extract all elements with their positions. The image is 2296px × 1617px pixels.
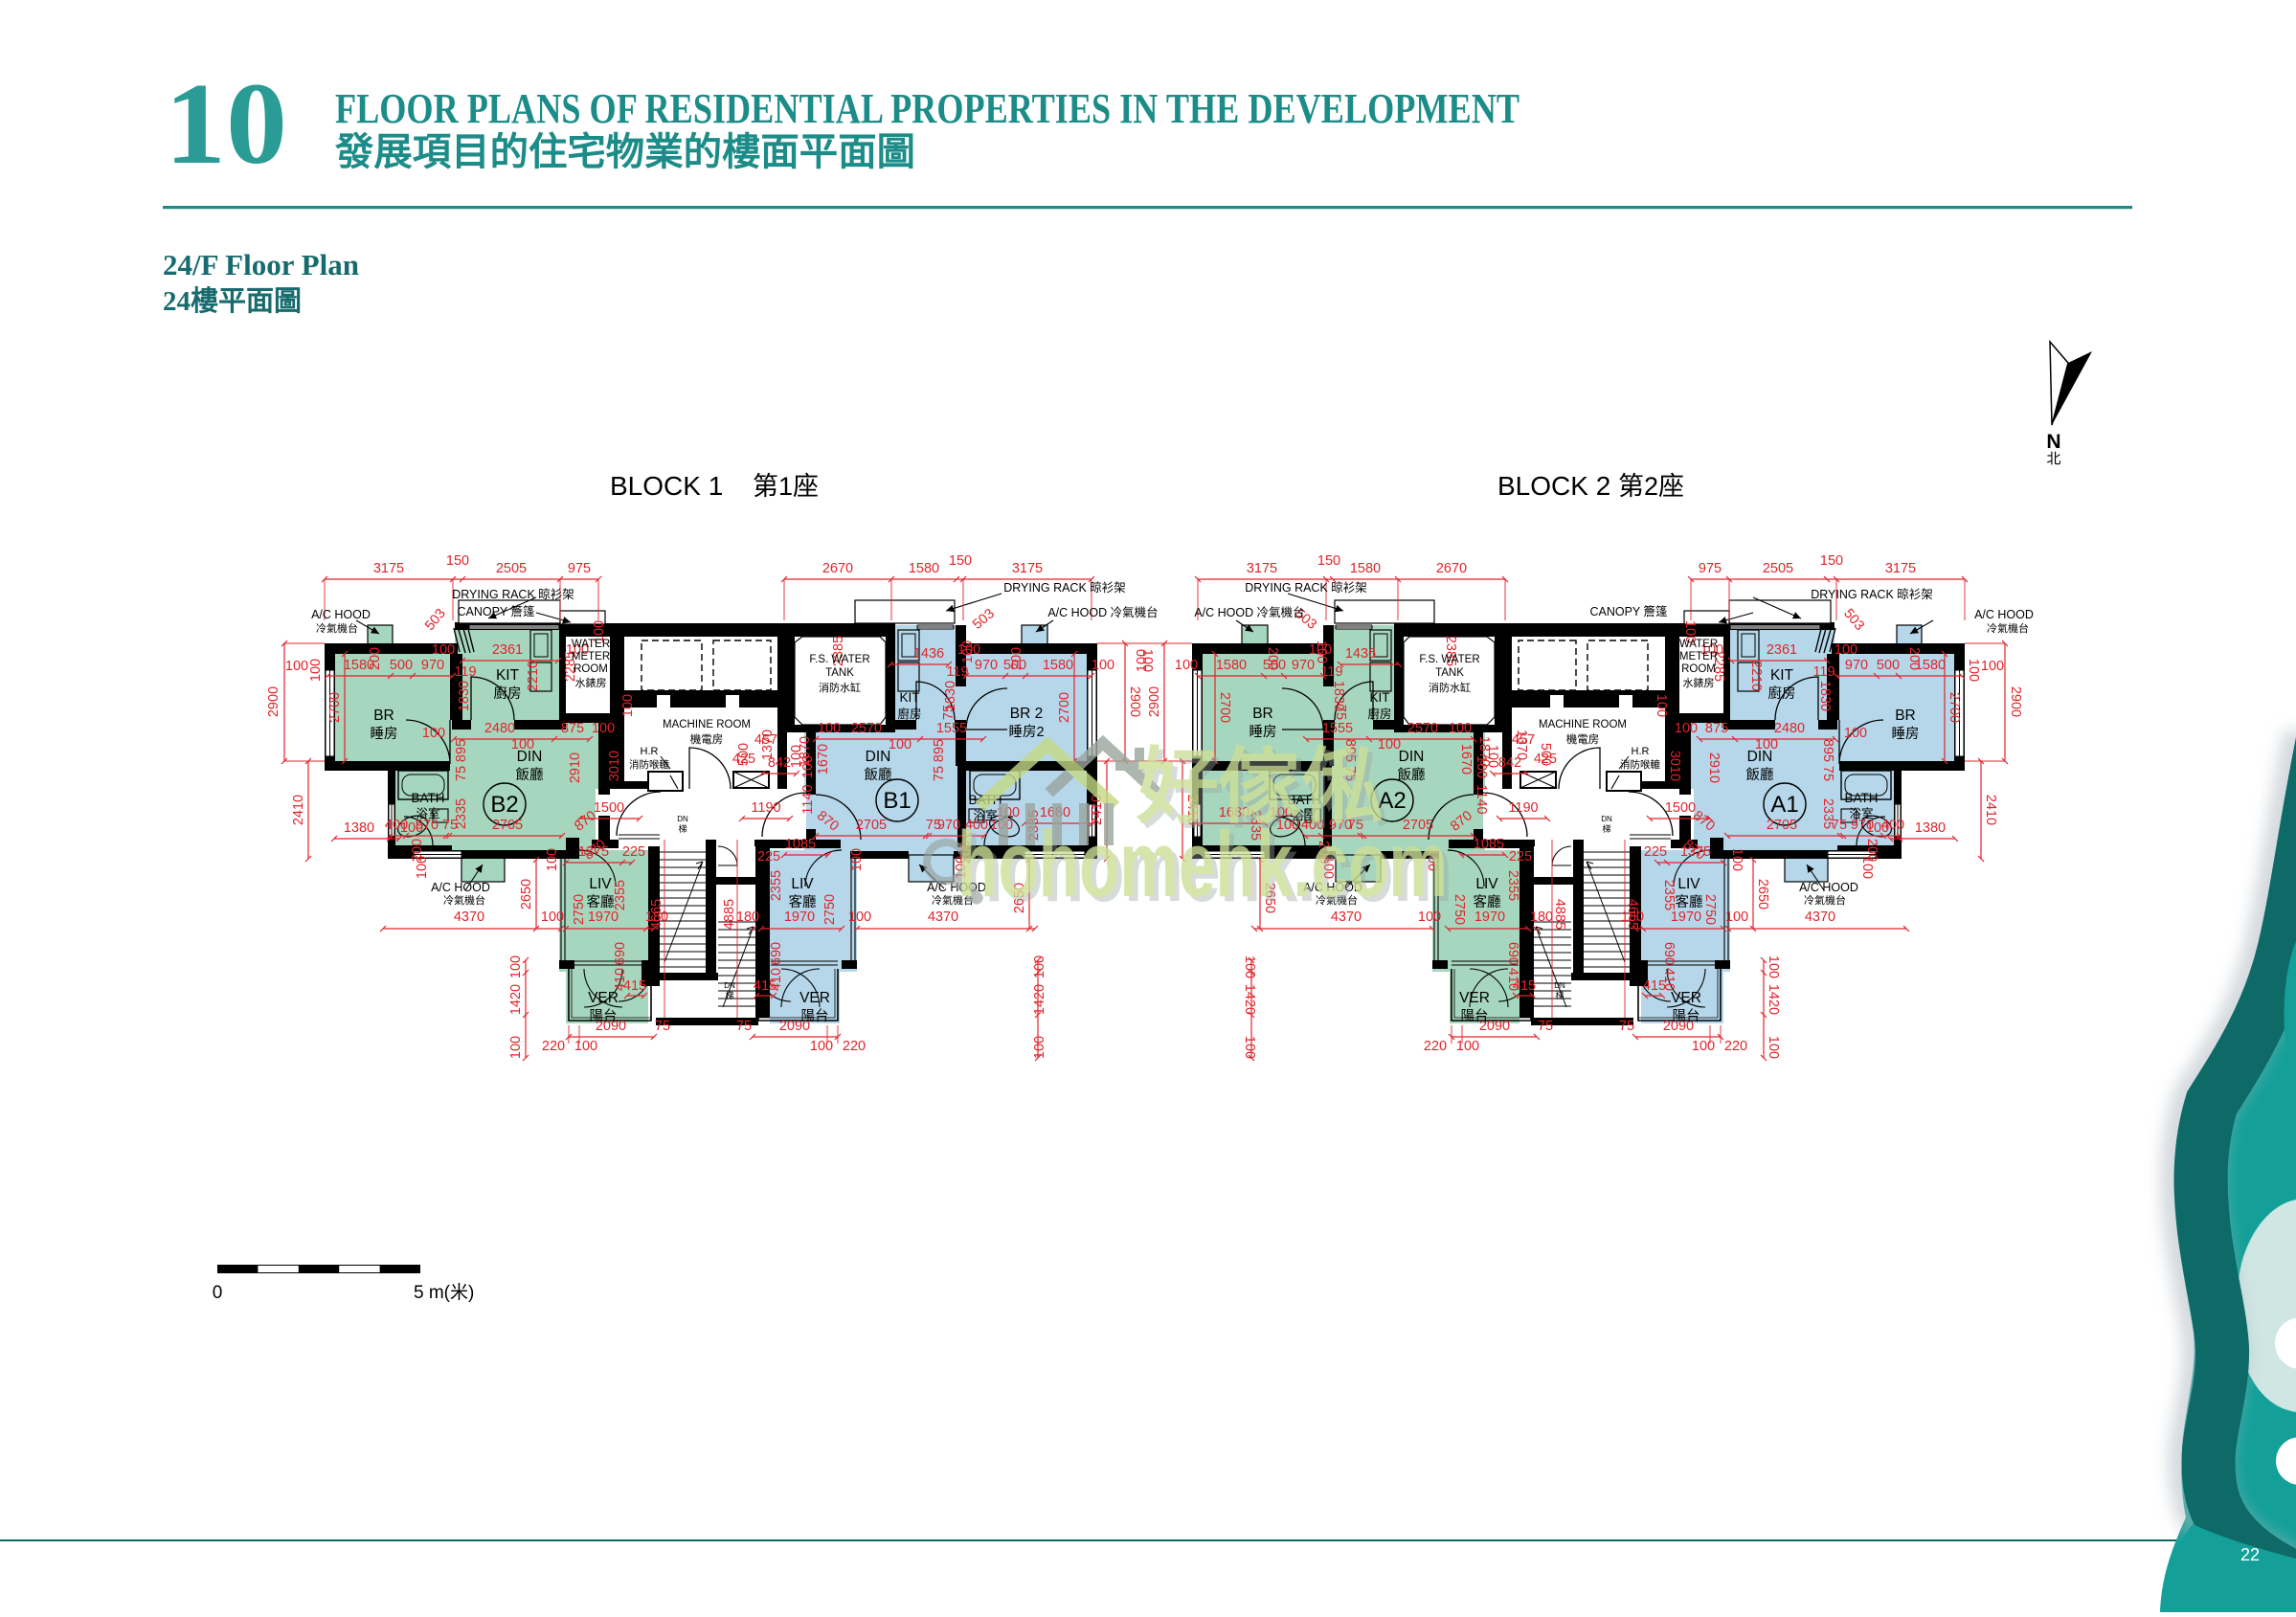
svg-text:1370: 1370	[760, 730, 776, 760]
svg-text:浴室: 浴室	[416, 806, 439, 820]
svg-text:1436: 1436	[1345, 646, 1376, 662]
svg-text:2705: 2705	[492, 818, 523, 833]
svg-text:119: 119	[1812, 664, 1835, 680]
svg-text:100: 100	[1485, 745, 1500, 768]
svg-text:180: 180	[736, 910, 759, 925]
svg-text:100: 100	[1692, 1039, 1715, 1054]
svg-text:梯: 梯	[725, 990, 733, 1000]
svg-text:DIN: DIN	[866, 749, 891, 765]
svg-text:970: 970	[1845, 658, 1868, 673]
svg-text:2750: 2750	[822, 894, 838, 925]
svg-text:225: 225	[1644, 844, 1667, 860]
svg-text:DIN: DIN	[517, 749, 543, 765]
svg-text:100: 100	[789, 745, 804, 768]
svg-text:2210: 2210	[526, 661, 541, 691]
svg-text:1420: 1420	[1032, 984, 1047, 1015]
svg-text:220: 220	[1724, 1039, 1747, 1054]
svg-text:500: 500	[736, 743, 752, 766]
svg-text:DN: DN	[1554, 981, 1565, 990]
svg-text:廚房: 廚房	[1768, 685, 1796, 702]
svg-text:150: 150	[949, 553, 972, 569]
svg-text:DIN: DIN	[1747, 749, 1773, 765]
svg-text:100: 100	[415, 856, 430, 879]
svg-text:DN: DN	[724, 981, 735, 990]
svg-text:400: 400	[1881, 818, 1904, 833]
svg-text:消防喉轆: 消防喉轆	[629, 758, 669, 771]
svg-text:LIV: LIV	[589, 876, 612, 892]
svg-text:75: 75	[1820, 766, 1835, 781]
svg-text:415: 415	[754, 978, 777, 994]
svg-text:100: 100	[308, 659, 324, 682]
svg-text:B1: B1	[883, 788, 911, 814]
svg-text:100: 100	[818, 721, 841, 736]
svg-text:KIT: KIT	[899, 690, 919, 705]
svg-text:VER: VER	[799, 990, 830, 1006]
svg-text:CANOPY 簷篷: CANOPY 簷篷	[457, 604, 535, 618]
svg-text:2705: 2705	[856, 818, 887, 833]
svg-text:2900: 2900	[1147, 686, 1162, 717]
svg-text:100: 100	[1844, 726, 1867, 741]
svg-text:100: 100	[1725, 910, 1748, 925]
svg-text:2700: 2700	[1057, 692, 1072, 723]
svg-text:METER: METER	[572, 651, 610, 663]
svg-text:100: 100	[422, 726, 445, 741]
svg-text:2700: 2700	[1217, 692, 1232, 723]
svg-text:975: 975	[568, 561, 591, 576]
svg-text:415: 415	[623, 978, 646, 994]
svg-text:200: 200	[368, 647, 383, 670]
svg-text:100: 100	[1859, 856, 1875, 879]
svg-text:冷氣機台: 冷氣機台	[443, 893, 485, 907]
svg-text:DN: DN	[1601, 815, 1612, 823]
svg-text:100: 100	[541, 910, 564, 925]
svg-text:機電房: 機電房	[690, 732, 724, 746]
svg-text:2900: 2900	[1127, 686, 1142, 717]
svg-text:METER: METER	[1679, 651, 1718, 663]
svg-text:75: 75	[1619, 1019, 1634, 1034]
svg-text:10: 10	[165, 59, 287, 189]
svg-text:2700: 2700	[327, 692, 343, 723]
svg-text:2910: 2910	[1706, 752, 1722, 783]
svg-text:1580: 1580	[909, 561, 939, 576]
svg-text:100: 100	[1242, 955, 1257, 978]
svg-text:100: 100	[592, 721, 615, 736]
svg-text:895: 895	[1820, 739, 1835, 762]
svg-text:100: 100	[1032, 955, 1047, 978]
svg-text:1140: 1140	[1474, 784, 1489, 814]
svg-text:飯廳: 飯廳	[865, 766, 892, 783]
svg-text:2410: 2410	[291, 795, 306, 825]
svg-text:A/C HOOD: A/C HOOD	[311, 608, 371, 621]
svg-text:415: 415	[1643, 978, 1666, 994]
svg-text:100: 100	[1032, 1036, 1047, 1059]
svg-text:4665: 4665	[1625, 899, 1640, 930]
svg-text:1085: 1085	[785, 837, 816, 852]
svg-text:梯: 梯	[678, 823, 687, 834]
svg-text:75: 75	[1333, 705, 1348, 720]
svg-text:F.S. WATER: F.S. WATER	[809, 654, 869, 665]
svg-text:MACHINE ROOM: MACHINE ROOM	[663, 719, 751, 730]
svg-text:3010: 3010	[607, 751, 622, 781]
svg-text:廚房: 廚房	[1367, 707, 1391, 721]
svg-text:119: 119	[1320, 664, 1342, 680]
svg-text:梯: 梯	[1555, 990, 1564, 1000]
svg-text:2410: 2410	[1983, 795, 1998, 825]
svg-text:2900: 2900	[266, 686, 281, 717]
svg-text:100: 100	[1139, 649, 1155, 672]
svg-text:1085: 1085	[1474, 837, 1504, 852]
svg-text:100: 100	[285, 659, 308, 674]
svg-text:1830: 1830	[1817, 681, 1833, 711]
svg-text:1380: 1380	[344, 820, 374, 836]
svg-text:24樓平面圖: 24樓平面圖	[163, 285, 302, 317]
svg-text:2650: 2650	[519, 879, 534, 910]
svg-text:1380: 1380	[1915, 820, 1946, 836]
svg-text:1420: 1420	[1766, 984, 1781, 1015]
svg-text:100: 100	[960, 640, 976, 663]
svg-text:BR: BR	[373, 707, 394, 724]
svg-text:F.S. WATER: F.S. WATER	[1419, 654, 1479, 665]
svg-text:2361: 2361	[1767, 642, 1797, 658]
svg-text:75: 75	[932, 766, 947, 781]
svg-text:第1座: 第1座	[753, 472, 819, 501]
svg-text:2505: 2505	[496, 561, 527, 576]
svg-text:1970: 1970	[784, 910, 815, 925]
svg-text:FLOOR PLANS OF RESIDENTIAL PRO: FLOOR PLANS OF RESIDENTIAL PROPERTIES IN…	[335, 85, 1519, 132]
svg-text:22: 22	[2240, 1545, 2260, 1564]
svg-text:75: 75	[442, 818, 458, 833]
svg-text:2700: 2700	[1947, 692, 1962, 723]
svg-text:LIV: LIV	[791, 876, 814, 892]
svg-text:220: 220	[542, 1039, 565, 1054]
svg-text:A/C HOOD: A/C HOOD	[431, 881, 490, 894]
svg-text:VER: VER	[1459, 990, 1490, 1006]
svg-text:A/C HOOD: A/C HOOD	[1974, 608, 2034, 621]
svg-text:895: 895	[454, 739, 469, 762]
svg-text:陽台: 陽台	[1673, 1008, 1700, 1024]
svg-text:895: 895	[932, 739, 947, 762]
svg-text:梯: 梯	[1602, 823, 1610, 834]
svg-text:A1: A1	[1770, 792, 1798, 818]
svg-text:2750: 2750	[1702, 894, 1718, 925]
svg-text:1555: 1555	[1322, 721, 1353, 736]
svg-text:4885: 4885	[722, 899, 737, 930]
svg-text:1670: 1670	[1458, 744, 1474, 775]
svg-text:hohomehk.com: hohomehk.com	[957, 812, 1448, 916]
svg-text:220: 220	[1424, 1039, 1447, 1054]
svg-text:2750: 2750	[572, 894, 587, 925]
svg-text:冷氣機台: 冷氣機台	[316, 621, 358, 635]
svg-text:1190: 1190	[1508, 800, 1538, 816]
svg-text:150: 150	[1317, 553, 1340, 569]
svg-text:消防水缸: 消防水缸	[819, 681, 861, 694]
svg-text:CANOPY 簷篷: CANOPY 簷篷	[1589, 604, 1668, 618]
svg-text:100: 100	[848, 910, 871, 925]
svg-text:4370: 4370	[1805, 910, 1835, 925]
svg-text:2210: 2210	[1748, 661, 1764, 691]
svg-text:4885: 4885	[1552, 899, 1567, 930]
svg-text:KIT: KIT	[1770, 667, 1794, 684]
svg-text:0: 0	[213, 1283, 223, 1303]
svg-text:100: 100	[508, 955, 524, 978]
svg-text:2480: 2480	[1774, 721, 1805, 736]
svg-text:690: 690	[613, 942, 628, 965]
svg-text:2750: 2750	[1452, 894, 1467, 925]
svg-text:100: 100	[545, 848, 560, 871]
svg-text:225: 225	[622, 844, 645, 860]
svg-text:DRYING RACK 晾衫架: DRYING RACK 晾衫架	[452, 587, 574, 601]
svg-text:1420: 1420	[508, 984, 524, 1015]
svg-text:水錶房: 水錶房	[1683, 677, 1715, 689]
svg-text:500: 500	[1877, 658, 1900, 673]
svg-text:1580: 1580	[1350, 561, 1381, 576]
svg-text:1140: 1140	[800, 784, 816, 814]
svg-text:2670: 2670	[822, 561, 853, 576]
svg-text:100: 100	[810, 1039, 833, 1054]
svg-text:A/C HOOD: A/C HOOD	[1799, 881, 1858, 894]
svg-text:875: 875	[561, 721, 584, 736]
svg-text:100: 100	[1654, 694, 1669, 717]
svg-text:DRYING RACK 晾衫架: DRYING RACK 晾衫架	[1245, 580, 1367, 595]
svg-text:DRYING RACK 晾衫架: DRYING RACK 晾衫架	[1003, 580, 1126, 595]
svg-text:陽台: 陽台	[590, 1008, 618, 1024]
svg-text:冷氣機台: 冷氣機台	[1804, 893, 1846, 907]
svg-text:BR: BR	[1895, 707, 1916, 724]
svg-text:24/F Floor Plan: 24/F Floor Plan	[163, 248, 359, 281]
svg-text:1500: 1500	[1665, 800, 1696, 816]
svg-text:200: 200	[1906, 647, 1922, 670]
svg-text:2361: 2361	[492, 642, 523, 658]
svg-text:BLOCK 2: BLOCK 2	[1497, 471, 1610, 501]
svg-text:睡房: 睡房	[1249, 724, 1277, 740]
svg-text:1370: 1370	[1514, 730, 1529, 760]
svg-text:4665: 4665	[649, 899, 664, 930]
svg-text:2355: 2355	[1505, 870, 1520, 901]
svg-text:4370: 4370	[454, 910, 484, 925]
svg-text:1970: 1970	[1474, 910, 1505, 925]
svg-text:975: 975	[1699, 561, 1722, 576]
svg-text:100: 100	[1314, 640, 1329, 663]
svg-text:LIV: LIV	[1677, 876, 1700, 892]
svg-text:100: 100	[1729, 848, 1745, 871]
svg-text:KIT: KIT	[496, 667, 520, 684]
svg-text:BATH: BATH	[1844, 791, 1878, 805]
svg-text:LIV: LIV	[1475, 876, 1498, 892]
svg-text:100: 100	[1835, 642, 1857, 658]
svg-text:H.R: H.R	[641, 746, 659, 757]
svg-text:WATER: WATER	[572, 639, 610, 650]
svg-text:3175: 3175	[1885, 561, 1916, 576]
svg-text:TANK: TANK	[825, 667, 854, 679]
svg-text:VER: VER	[1671, 990, 1701, 1006]
svg-text:冷氣機台: 冷氣機台	[1987, 621, 2029, 635]
svg-text:970: 970	[975, 658, 998, 673]
svg-text:BLOCK 1: BLOCK 1	[610, 471, 723, 501]
svg-text:N: N	[2046, 431, 2060, 453]
svg-text:4370: 4370	[928, 910, 958, 925]
svg-text:100: 100	[1766, 955, 1781, 978]
svg-text:客廳: 客廳	[1676, 893, 1703, 910]
svg-text:BATH: BATH	[411, 791, 444, 805]
svg-text:1970: 1970	[588, 910, 619, 925]
svg-text:75: 75	[941, 705, 957, 720]
svg-text:415: 415	[1513, 978, 1536, 994]
svg-text:75: 75	[736, 1019, 752, 1034]
svg-text:100: 100	[1175, 658, 1198, 673]
svg-text:A/C HOOD 冷氣機台: A/C HOOD 冷氣機台	[1047, 605, 1158, 619]
svg-text:飯廳: 飯廳	[1746, 766, 1774, 783]
svg-text:消防水缸: 消防水缸	[1429, 681, 1471, 694]
svg-text:1500: 1500	[594, 800, 624, 816]
svg-text:100: 100	[889, 737, 912, 752]
svg-text:BR 2: BR 2	[1010, 706, 1043, 722]
svg-text:970: 970	[421, 658, 444, 673]
svg-text:1555: 1555	[936, 721, 967, 736]
svg-text:690: 690	[769, 942, 784, 965]
svg-text:ROOM: ROOM	[574, 663, 608, 675]
svg-text:廚房: 廚房	[494, 685, 522, 702]
svg-text:970: 970	[1292, 658, 1315, 673]
svg-text:100: 100	[849, 848, 865, 871]
svg-text:2650: 2650	[1755, 879, 1770, 910]
svg-text:睡房: 睡房	[371, 726, 398, 742]
svg-text:119: 119	[946, 664, 968, 680]
svg-text:100: 100	[1242, 1036, 1257, 1059]
svg-text:100: 100	[1766, 1036, 1781, 1059]
svg-text:100: 100	[620, 694, 636, 717]
svg-text:飯廳: 飯廳	[1398, 766, 1426, 783]
svg-text:2910: 2910	[568, 752, 583, 783]
svg-text:1436: 1436	[913, 646, 944, 662]
svg-text:180: 180	[1530, 910, 1553, 925]
svg-text:睡房2: 睡房2	[1008, 724, 1044, 740]
svg-text:2705: 2705	[1767, 818, 1797, 833]
svg-text:BR: BR	[1252, 706, 1273, 722]
svg-text:1670: 1670	[816, 744, 831, 775]
svg-text:500: 500	[1538, 743, 1553, 766]
svg-text:75: 75	[1538, 1019, 1553, 1034]
svg-text:875: 875	[1705, 721, 1728, 736]
svg-text:客廳: 客廳	[1474, 893, 1501, 910]
svg-text:1580: 1580	[1216, 658, 1247, 673]
svg-text:150: 150	[1820, 553, 1843, 569]
svg-text:A/C HOOD 冷氣機台: A/C HOOD 冷氣機台	[1194, 605, 1304, 619]
svg-text:400: 400	[385, 818, 408, 833]
svg-text:飯廳: 飯廳	[516, 766, 544, 783]
svg-text:2355: 2355	[769, 870, 784, 901]
svg-text:100: 100	[1675, 721, 1698, 736]
svg-text:VER: VER	[588, 990, 619, 1006]
svg-text:119: 119	[454, 664, 476, 680]
svg-text:220: 220	[843, 1039, 866, 1054]
svg-text:2355: 2355	[613, 880, 628, 910]
svg-text:2900: 2900	[2008, 686, 2023, 717]
svg-text:機電房: 機電房	[1566, 732, 1600, 746]
svg-text:200: 200	[1009, 647, 1024, 670]
svg-text:發展項目的住宅物業的樓面平面圖: 發展項目的住宅物業的樓面平面圖	[334, 130, 915, 173]
svg-text:2570: 2570	[851, 721, 882, 736]
svg-text:75: 75	[454, 766, 469, 781]
svg-text:H.R: H.R	[1632, 746, 1650, 757]
svg-text:100: 100	[1456, 1039, 1479, 1054]
svg-text:100: 100	[1966, 659, 1981, 682]
svg-text:1970: 1970	[1671, 910, 1701, 925]
svg-text:水錶房: 水錶房	[575, 677, 607, 689]
svg-text:3010: 3010	[1667, 751, 1682, 781]
svg-text:B2: B2	[490, 792, 518, 818]
svg-text:TANK: TANK	[1435, 667, 1464, 679]
svg-text:225: 225	[1509, 849, 1532, 865]
svg-text:1190: 1190	[751, 800, 780, 816]
svg-text:75: 75	[1832, 818, 1847, 833]
svg-text:3175: 3175	[373, 561, 404, 576]
svg-text:100: 100	[1092, 658, 1114, 673]
svg-text:1420: 1420	[1242, 984, 1257, 1015]
svg-text:3175: 3175	[1247, 561, 1277, 576]
svg-text:北: 北	[2046, 451, 2060, 467]
svg-text:500: 500	[390, 658, 413, 673]
svg-text:3175: 3175	[1012, 561, 1043, 576]
svg-text:DN: DN	[677, 815, 688, 823]
svg-text:690: 690	[1661, 942, 1677, 965]
svg-text:2670: 2670	[1436, 561, 1467, 576]
svg-text:100: 100	[508, 1036, 524, 1059]
svg-text:KIT: KIT	[1369, 690, 1389, 705]
svg-text:690: 690	[1505, 942, 1520, 965]
svg-text:1580: 1580	[1043, 658, 1073, 673]
svg-text:DRYING RACK 晾衫架: DRYING RACK 晾衫架	[1811, 587, 1933, 601]
svg-text:廚房: 廚房	[897, 707, 921, 721]
svg-text:DIN: DIN	[1399, 749, 1425, 765]
svg-text:100: 100	[432, 642, 455, 658]
svg-text:ROOM: ROOM	[1681, 663, 1716, 675]
svg-text:5 m(米): 5 m(米)	[414, 1282, 474, 1303]
svg-text:2505: 2505	[1763, 561, 1793, 576]
svg-text:WATER: WATER	[1679, 639, 1718, 650]
svg-text:陽台: 陽台	[801, 1008, 829, 1024]
svg-text:100: 100	[1981, 659, 2004, 674]
svg-text:150: 150	[446, 553, 469, 569]
svg-text:客廳: 客廳	[587, 893, 615, 910]
svg-text:1830: 1830	[457, 681, 472, 711]
svg-text:100: 100	[574, 1039, 597, 1054]
svg-text:2480: 2480	[484, 721, 515, 736]
svg-text:客廳: 客廳	[789, 893, 817, 910]
svg-text:2570: 2570	[1407, 721, 1438, 736]
svg-text:陽台: 陽台	[1461, 1008, 1489, 1024]
svg-text:75: 75	[655, 1019, 670, 1034]
svg-text:225: 225	[757, 849, 780, 865]
svg-text:第2座: 第2座	[1618, 472, 1684, 501]
svg-text:消防喉轆: 消防喉轆	[1620, 758, 1660, 771]
svg-text:MACHINE ROOM: MACHINE ROOM	[1539, 719, 1627, 730]
svg-text:浴室: 浴室	[1849, 806, 1873, 820]
svg-text:200: 200	[1265, 647, 1280, 670]
svg-text:100: 100	[1449, 721, 1472, 736]
svg-text:睡房: 睡房	[1892, 726, 1920, 742]
